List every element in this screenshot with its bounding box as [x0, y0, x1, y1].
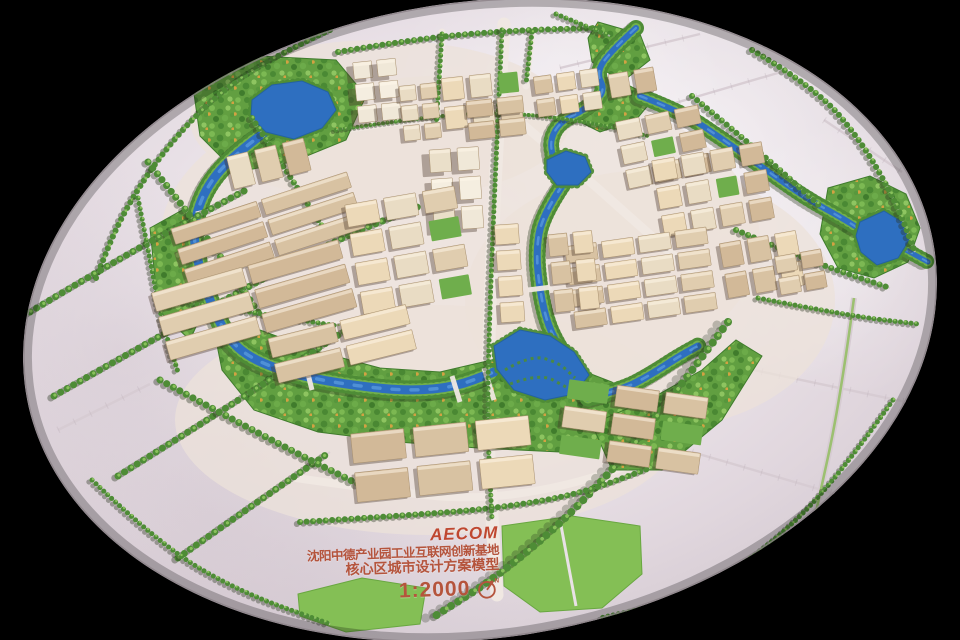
- model-photo: AECOM 沈阳中德产业园工业互联网创新基地 核心区城市设计方案模型 1:200…: [0, 0, 960, 640]
- city-model-svg: [0, 0, 960, 640]
- courtyard-green: [716, 175, 740, 198]
- courtyard-green: [498, 72, 519, 94]
- building-cluster: [345, 58, 402, 128]
